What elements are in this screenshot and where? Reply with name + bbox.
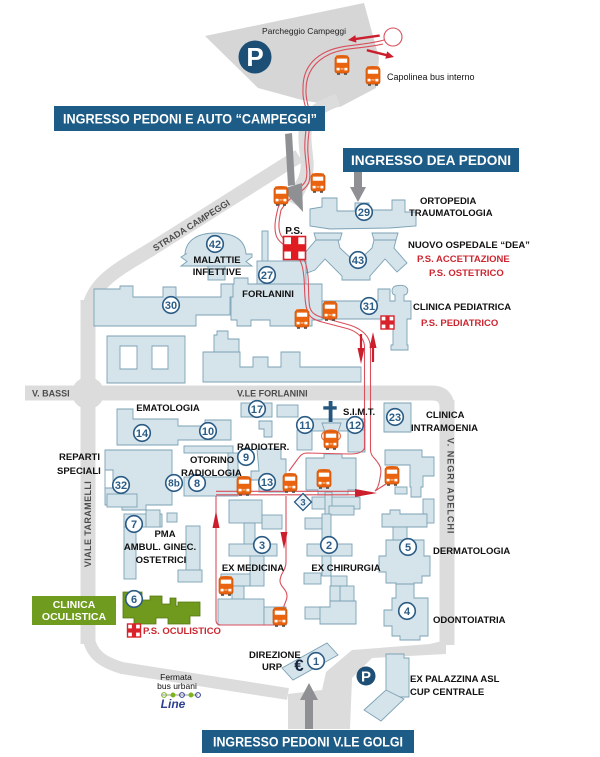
svg-text:3: 3: [300, 498, 305, 509]
svg-text:Parcheggio Campeggi: Parcheggio Campeggi: [262, 26, 346, 36]
svg-text:Line: Line: [161, 697, 186, 711]
svg-text:bus urbani: bus urbani: [157, 681, 197, 691]
svg-text:P.S. OSTETRICO: P.S. OSTETRICO: [429, 268, 504, 279]
svg-text:32: 32: [115, 480, 127, 492]
svg-text:CLINICA PEDIATRICA: CLINICA PEDIATRICA: [413, 302, 511, 313]
svg-text:P.S. PEDIATRICO: P.S. PEDIATRICO: [421, 318, 498, 329]
svg-text:VIALE TARAMELLI: VIALE TARAMELLI: [83, 481, 93, 567]
svg-text:27: 27: [261, 270, 273, 282]
svg-text:31: 31: [363, 301, 375, 313]
svg-text:PMA: PMA: [154, 529, 175, 540]
svg-text:ODONTOIATRIA: ODONTOIATRIA: [433, 615, 506, 626]
svg-text:CLINICA: CLINICA: [426, 410, 465, 421]
svg-text:ORTOPEDIA: ORTOPEDIA: [420, 196, 476, 207]
svg-text:EX PALAZZINA ASL: EX PALAZZINA ASL: [410, 674, 500, 685]
svg-text:CUP CENTRALE: CUP CENTRALE: [410, 687, 484, 698]
svg-text:TRAUMATOLOGIA: TRAUMATOLOGIA: [409, 208, 493, 219]
svg-text:OTORINO: OTORINO: [190, 455, 234, 466]
svg-text:23: 23: [389, 412, 401, 424]
svg-text:INFETTIVE: INFETTIVE: [193, 267, 242, 278]
svg-text:FORLANINI: FORLANINI: [242, 289, 294, 300]
svg-text:12: 12: [349, 420, 361, 432]
svg-text:11: 11: [299, 420, 311, 432]
svg-text:7: 7: [131, 519, 137, 531]
svg-text:RADIOLOGIA: RADIOLOGIA: [181, 468, 242, 479]
svg-text:DIREZIONE: DIREZIONE: [249, 650, 301, 661]
svg-text:P.S. OCULISTICO: P.S. OCULISTICO: [143, 626, 221, 637]
svg-text:3: 3: [259, 540, 265, 552]
svg-text:NUOVO OSPEDALE “DEA”: NUOVO OSPEDALE “DEA”: [408, 240, 530, 251]
svg-text:42: 42: [209, 239, 221, 251]
svg-text:URP: URP: [262, 662, 283, 673]
svg-text:V.LE FORLANINI: V.LE FORLANINI: [237, 389, 308, 399]
svg-text:EMATOLOGIA: EMATOLOGIA: [136, 403, 200, 414]
svg-text:INGRESSO PEDONI V.LE GOLGI: INGRESSO PEDONI V.LE GOLGI: [213, 735, 403, 750]
svg-text:OCULISTICA: OCULISTICA: [42, 611, 107, 623]
svg-text:Capolinea bus interno: Capolinea bus interno: [387, 72, 475, 82]
svg-text:REPARTI: REPARTI: [59, 452, 100, 463]
svg-text:6: 6: [131, 594, 137, 606]
svg-text:INGRESSO DEA PEDONI: INGRESSO DEA PEDONI: [351, 153, 511, 168]
svg-text:8: 8: [194, 478, 200, 490]
svg-text:10: 10: [202, 426, 214, 438]
svg-text:1: 1: [313, 656, 319, 668]
svg-text:AMBUL. GINEC.: AMBUL. GINEC.: [124, 542, 196, 553]
svg-text:MALATTIE: MALATTIE: [193, 255, 240, 266]
svg-text:P.S.: P.S.: [285, 226, 303, 237]
svg-text:43: 43: [352, 255, 364, 267]
svg-text:RADIOTER.: RADIOTER.: [237, 442, 289, 453]
svg-text:S.I.M.T.: S.I.M.T.: [343, 407, 375, 418]
svg-text:9: 9: [243, 452, 249, 464]
svg-text:SPECIALI: SPECIALI: [57, 466, 101, 477]
svg-text:P: P: [246, 42, 263, 72]
svg-text:EX MEDICINA: EX MEDICINA: [222, 563, 284, 574]
svg-text:17: 17: [251, 404, 263, 416]
svg-text:P: P: [361, 669, 371, 686]
svg-text:8b: 8b: [168, 479, 180, 490]
svg-text:14: 14: [136, 428, 149, 440]
svg-text:INGRESSO PEDONI E AUTO “CAMPEG: INGRESSO PEDONI E AUTO “CAMPEGGI”: [63, 112, 317, 127]
svg-text:CLINICA: CLINICA: [53, 599, 96, 611]
svg-text:5: 5: [405, 542, 411, 554]
svg-text:P.S. ACCETTAZIONE: P.S. ACCETTAZIONE: [417, 254, 510, 265]
svg-text:EX CHIRURGIA: EX CHIRURGIA: [311, 563, 380, 574]
svg-text:INTRAMOENIA: INTRAMOENIA: [411, 423, 478, 434]
svg-text:30: 30: [165, 300, 177, 312]
svg-text:V. NEGRI ADELCHI: V. NEGRI ADELCHI: [446, 438, 456, 535]
svg-text:2: 2: [326, 540, 332, 552]
svg-text:13: 13: [261, 477, 273, 489]
svg-text:29: 29: [358, 207, 370, 219]
svg-text:V. BASSI: V. BASSI: [32, 389, 70, 399]
svg-text:OSTETRICI: OSTETRICI: [136, 555, 187, 566]
svg-text:4: 4: [404, 606, 411, 618]
svg-text:DERMATOLOGIA: DERMATOLOGIA: [433, 546, 510, 557]
